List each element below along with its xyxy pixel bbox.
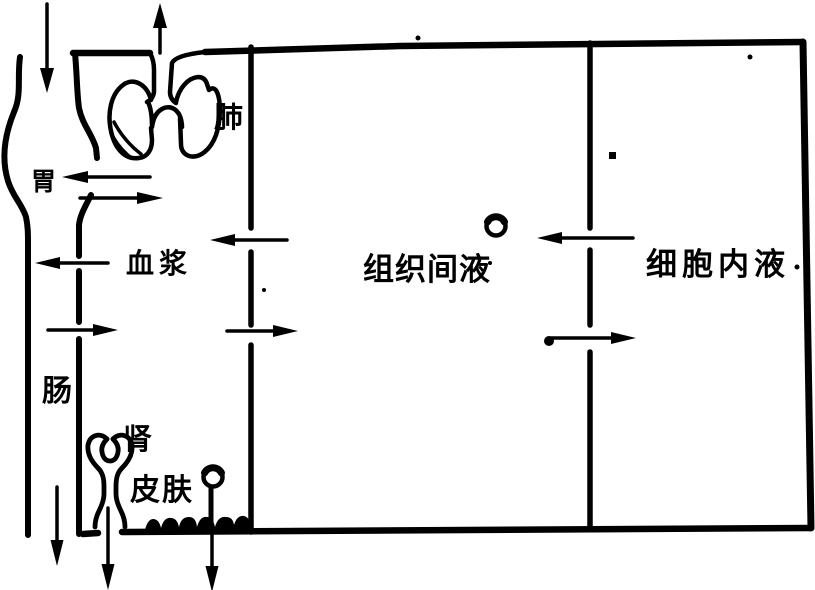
lung-label: 肺 [214, 103, 243, 132]
skin-label: 皮肤 [130, 476, 194, 506]
arrow-exhalation [153, 3, 167, 53]
intracellular-fluid-compartment [591, 43, 806, 527]
arrow-perspiration [206, 532, 219, 590]
interstitial-fluid-label: 组织间液 [363, 255, 491, 286]
kidney-label: 肾 [123, 425, 152, 454]
digestive-tract-region [2, 52, 80, 534]
plasma-label: 血浆 [126, 250, 192, 278]
body-fluid-diagram: 胃 肠 肺 血浆 组织间液 细胞内液 肾 皮肤 [0, 0, 815, 590]
ink-speck [416, 36, 421, 41]
intracellular-fluid-label: 细胞内液 [646, 250, 790, 281]
stomach-label: 胃 [31, 169, 56, 194]
intestine-label: 肠 [42, 377, 72, 407]
interstitial-fluid-compartment [252, 46, 589, 530]
